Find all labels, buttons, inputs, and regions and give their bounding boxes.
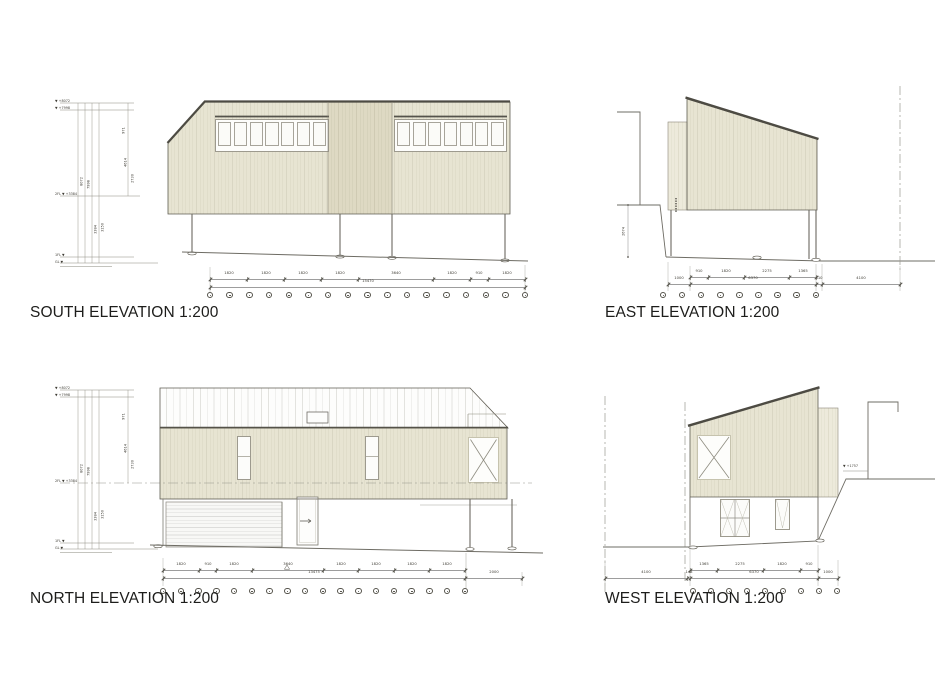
grid-bubble (698, 292, 705, 299)
dim-label: 2275 (735, 562, 744, 566)
drawing-canvas: 1820182018201820364018209101820 15470 91… (0, 0, 940, 697)
grid-bubble (717, 292, 724, 299)
dim-label: 910 (204, 562, 211, 566)
dim-label: 910 (695, 269, 702, 273)
south-rail-dim: 2730 (131, 174, 135, 183)
east-height-dim: 2674 (622, 227, 626, 236)
entry-door (297, 497, 318, 545)
grid-bubble (355, 588, 362, 595)
grid-bubble (384, 292, 391, 299)
dim-label: 1820 (371, 562, 380, 566)
clerestory-pane (234, 122, 247, 147)
grid-bubble (325, 292, 332, 299)
grid-bubble (774, 292, 781, 299)
window-mullion (238, 456, 250, 457)
dim-label: 1820 (298, 271, 307, 275)
grid-bubble (246, 292, 253, 299)
grid-bubble (404, 292, 411, 299)
dim-label: 1820 (336, 562, 345, 566)
grid-bubble (444, 588, 451, 595)
west-braced-window (697, 435, 731, 480)
dim-label: 1820 (721, 269, 730, 273)
grid-bubble (834, 588, 841, 595)
west-window-2 (775, 499, 790, 530)
grid-bubble (391, 588, 398, 595)
grid-bubble (793, 292, 800, 299)
dim-label: 310 (815, 276, 822, 280)
window-mullion (366, 456, 378, 457)
grid-bubble (798, 588, 805, 595)
dim-label: 6370 (749, 570, 758, 574)
north-window-1 (237, 436, 251, 480)
grid-bubble (249, 588, 256, 595)
east-facade-siding (687, 98, 817, 210)
clerestory-pane (444, 122, 457, 147)
grid-bubble (736, 292, 743, 299)
west-elevation-title: WEST ELEVATION 1:200 (605, 590, 784, 608)
grid-bubble (337, 588, 344, 595)
grid-bubble (284, 588, 291, 595)
south-clerestory-right (394, 119, 507, 152)
dim-label: 1820 (777, 562, 786, 566)
grid-bubble (502, 292, 509, 299)
north-level-label: 1FL ▼ (55, 539, 65, 543)
north-facade-siding (160, 428, 507, 499)
grid-bubble (320, 588, 327, 595)
clerestory-pane (397, 122, 410, 147)
dim-label: 1820 (224, 271, 233, 275)
grid-bubble (266, 588, 273, 595)
north-rail-dim: 3150 (101, 510, 105, 519)
grid-bubble (207, 292, 214, 299)
clerestory-pane (265, 122, 278, 147)
north-rail-dim: 7998 (87, 467, 91, 476)
north-level-label: ▼ +7998 (55, 393, 70, 397)
west-window-1 (720, 499, 750, 537)
clerestory-pane (218, 122, 231, 147)
dim-label: 1820 (335, 271, 344, 275)
south-level-label: ▼ +7998 (55, 106, 70, 110)
clerestory-pane (313, 122, 326, 147)
grid-bubble (443, 292, 450, 299)
grid-bubble (423, 292, 430, 299)
south-level-label: 1FL ▼ (55, 253, 65, 257)
south-level-label: 2FL ▼ +3384 (55, 192, 77, 196)
grid-bubble (660, 292, 667, 299)
grid-bubble (679, 292, 686, 299)
north-rail-dim: 4614 (124, 444, 128, 453)
north-rail-dim: 971 (122, 413, 126, 420)
dim-label: 1820 (502, 271, 511, 275)
dim-label: 910 (475, 271, 482, 275)
grid-bubble (345, 292, 352, 299)
north-braced-window (468, 437, 499, 483)
grid-bubble (286, 292, 293, 299)
south-level-label: ▼ +8072 (55, 99, 70, 103)
dim-label: 4100 (641, 570, 650, 574)
dim-label: 1365 (699, 562, 708, 566)
grid-bubble (463, 292, 470, 299)
grid-bubble (302, 588, 309, 595)
grid-bubble (462, 588, 469, 595)
south-rail-dim: 4614 (124, 158, 128, 167)
north-window-2 (365, 436, 379, 480)
grid-bubble (231, 588, 238, 595)
west-ground-note: ▼ +1757 (843, 464, 858, 468)
dim-label: 15470 (362, 279, 374, 283)
north-elevation-title: NORTH ELEVATION 1:200 (30, 590, 219, 608)
south-rail-dim: 8072 (80, 177, 84, 186)
garage-door (166, 502, 282, 547)
grid-bubble (266, 292, 273, 299)
dim-label: 13475 (308, 570, 320, 574)
north-rail-dim: 2730 (131, 460, 135, 469)
clerestory-pane (460, 122, 473, 147)
south-rail-dim: 7998 (87, 180, 91, 189)
clerestory-pane (281, 122, 294, 147)
grid-bubble (373, 588, 380, 595)
dim-label: 143 (685, 570, 692, 574)
north-rail-dim: 8072 (80, 464, 84, 473)
dim-label: 1000 (674, 276, 683, 280)
clerestory-pane (297, 122, 310, 147)
east-rear-wall-panel (668, 122, 687, 210)
dim-label: 6370 (748, 276, 757, 280)
dim-label: 1365 (798, 269, 807, 273)
grid-bubble (483, 292, 490, 299)
north-level-label: GL ▼ (55, 546, 63, 550)
dim-label: 1820 (447, 271, 456, 275)
north-roof-plane (160, 388, 508, 428)
east-elevation-title: EAST ELEVATION 1:200 (605, 304, 779, 322)
dim-label: 2000 (489, 570, 498, 574)
dim-label: 4100 (856, 276, 865, 280)
south-level-label: GL ▼ (55, 260, 63, 264)
north-level-label: 2FL ▼ +3384 (55, 479, 77, 483)
clerestory-pane (491, 122, 504, 147)
dim-label: 1820 (261, 271, 270, 275)
west-rear-wall-panel (818, 408, 838, 497)
north-rail-dim: 3384 (94, 512, 98, 521)
clerestory-pane (413, 122, 426, 147)
grid-bubble (816, 588, 823, 595)
dim-label: 1820 (176, 562, 185, 566)
grid-bubble (755, 292, 762, 299)
south-rail-dim: 3150 (101, 223, 105, 232)
grid-bubble (426, 588, 433, 595)
dim-label: 1000 (823, 570, 832, 574)
dim-label: 3640 (391, 271, 400, 275)
clerestory-pane (475, 122, 488, 147)
grid-bubble (364, 292, 371, 299)
grid-bubble (408, 588, 415, 595)
dim-label: 2275 (762, 269, 771, 273)
north-level-label: ▼ +8072 (55, 386, 70, 390)
grid-bubble (813, 292, 820, 299)
dim-label: 1820 (407, 562, 416, 566)
south-elevation-title: SOUTH ELEVATION 1:200 (30, 304, 218, 322)
dim-label: 910 (805, 562, 812, 566)
grid-bubble (522, 292, 529, 299)
dim-label: 1820 (229, 562, 238, 566)
south-clerestory-left (215, 119, 329, 152)
grid-bubble (226, 292, 233, 299)
dim-label: 1820 (442, 562, 451, 566)
grid-bubble (305, 292, 312, 299)
clerestory-pane (428, 122, 441, 147)
clerestory-pane (250, 122, 263, 147)
south-rail-dim: 3384 (94, 225, 98, 234)
dim-label: 3640 (283, 562, 292, 566)
south-rail-dim: 971 (122, 127, 126, 134)
south-center-band (328, 102, 392, 214)
